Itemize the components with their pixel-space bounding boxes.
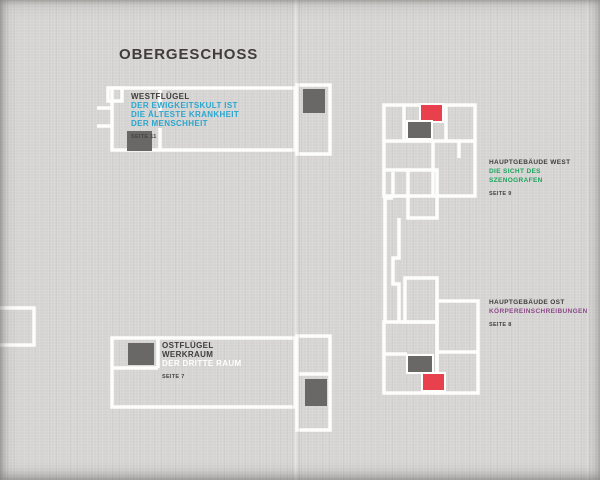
ostfluegel-dark-room-right: [305, 379, 327, 406]
ostfluegel-page-ref: SEITE 7: [162, 374, 241, 380]
floorplan-svg: [0, 0, 600, 480]
hgost-upper-room-outline: [405, 278, 437, 322]
edge-partial-building-outline: [0, 308, 34, 345]
hgwest-red-room: [420, 104, 443, 122]
westfluegel-title: WESTFLÜGEL: [131, 92, 239, 101]
hgwest-page-ref: SEITE 9: [489, 191, 570, 197]
ostfluegel-title: OSTFLÜGEL: [162, 341, 241, 350]
westfluegel-dark-room-right: [303, 89, 325, 113]
ostfluegel-title: WERKRAUM: [162, 350, 241, 359]
hgwest-dark-room: [407, 121, 432, 139]
corridor-right-wall: [393, 218, 399, 322]
ostfluegel-dark-room-left: [128, 343, 154, 365]
hgost-title: HAUPTGEBÄUDE OST: [489, 298, 588, 307]
westfluegel-subtitle-line: DER EWIGKEITSKULT IST: [131, 101, 239, 110]
westfluegel-page-ref: SEITE 11: [131, 134, 239, 140]
hgwest-subtitle-line: DIE SICHT DES: [489, 167, 570, 176]
page-title: OBERGESCHOSS: [119, 46, 258, 63]
westfluegel-label: WESTFLÜGEL DER EWIGKEITSKULT IST DIE ÄLT…: [131, 92, 239, 140]
hauptgebaeude-ost-label: HAUPTGEBÄUDE OST KÖRPEREINSCHREIBUNGEN S…: [489, 298, 588, 328]
westfluegel-corner-room-outline: [108, 88, 122, 101]
hgost-page-ref: SEITE 8: [489, 322, 588, 328]
westfluegel-subtitle-line: DIE ÄLTESTE KRANKHEIT: [131, 110, 239, 119]
ostfluegel-subtitle-line: DER DRITTE RAUM: [162, 359, 241, 368]
hgwest-title: HAUPTGEBÄUDE WEST: [489, 158, 570, 167]
hgost-subtitle-line: KÖRPEREINSCHREIBUNGEN: [489, 307, 588, 316]
ostfluegel-label: OSTFLÜGEL WERKRAUM DER DRITTE RAUM SEITE…: [162, 341, 241, 380]
hauptgebaeude-west-label: HAUPTGEBÄUDE WEST DIE SICHT DES SZENOGRA…: [489, 158, 570, 197]
scanned-floorplan-page: OBERGESCHOSS: [0, 0, 600, 480]
hgost-red-room: [422, 373, 445, 391]
hgost-dark-room: [407, 355, 433, 373]
hgwest-subtitle-line: SZENOGRAFEN: [489, 176, 570, 185]
westfluegel-subtitle-line: DER MENSCHHEIT: [131, 119, 239, 128]
